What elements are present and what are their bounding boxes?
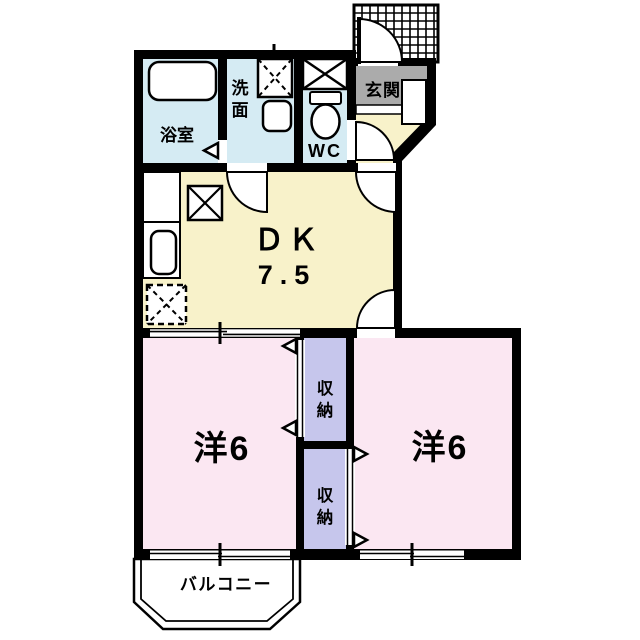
washroom-label-char2: 面 [232,101,249,120]
washer-pan-box [147,285,186,324]
washroom-machine-box [258,59,292,97]
toilet [310,92,341,139]
wc-door-opening [347,120,356,160]
bathtub [149,62,216,100]
floor-plan: 浴室 洗 面 WC 玄関 ＤＫ 7.5 洋6 洋6 収 納 収 納 バルコニー [0,0,640,640]
refrigerator-box [188,186,222,220]
washroom-label-char1: 洗 [232,78,249,98]
wall-right [512,328,521,560]
closet-upper-label-char2: 納 [317,400,334,420]
wall-left [134,50,143,560]
wall-bath-wash [218,59,227,140]
bedroom-left-label: 洋6 [194,430,251,468]
washroom-dk-door-opening [227,163,267,172]
balcony [134,559,300,629]
wall-wash-wc [294,59,303,163]
closet-lower-slider-opening [345,449,355,545]
kitchen-sink [151,231,176,274]
closet-lower-label-char1: 収 [317,486,334,505]
storage-x-box [303,59,347,89]
bedroom-right-label: 洋6 [412,429,469,467]
hallway-dk-door-opening [358,163,396,172]
balcony-outer-rail [134,559,300,629]
wall-closet-divider [296,441,354,449]
bath-door-opening [218,140,227,163]
dk-bedroom-door-opening [357,328,395,338]
balcony-label: バルコニー [180,575,272,594]
dk-bedroom-slider-opening [150,329,300,336]
floor-plan-page: 浴室 洗 面 WC 玄関 ＤＫ 7.5 洋6 洋6 収 納 収 納 バルコニー [0,0,640,640]
wall-top [134,50,356,59]
closet-upper-label-char1: 収 [317,379,334,398]
shoe-cabinet [402,80,426,124]
dk-label: ＤＫ [254,224,322,257]
washbasin [263,101,291,131]
bathroom-label: 浴室 [160,125,194,145]
entrance-label: 玄関 [365,80,401,100]
wc-label: WC [308,141,342,161]
wall-entrance-right [427,59,436,125]
closet-lower-label-char2: 納 [317,507,334,527]
dk-size-label: 7.5 [258,260,317,290]
